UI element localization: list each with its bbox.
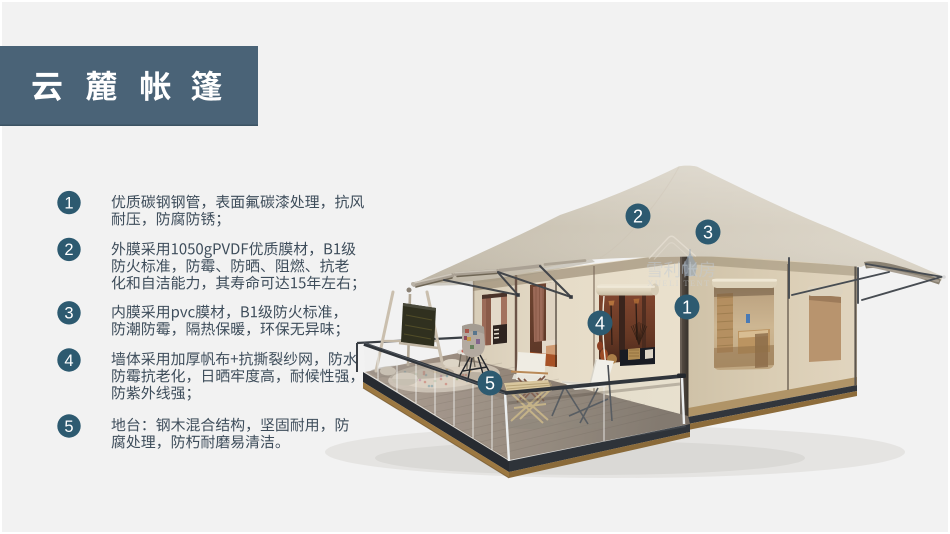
svg-text:4: 4 <box>595 313 605 333</box>
svg-text:3: 3 <box>64 305 73 323</box>
svg-text:1: 1 <box>64 194 73 212</box>
svg-text:2: 2 <box>633 206 643 226</box>
svg-text:4: 4 <box>64 352 73 370</box>
svg-text:5: 5 <box>64 418 73 436</box>
svg-text:2: 2 <box>64 241 73 259</box>
svg-text:1: 1 <box>682 297 692 317</box>
svg-text:XUELI TENT: XUELI TENT <box>647 279 710 288</box>
svg-text:5: 5 <box>485 373 495 393</box>
svg-text:3: 3 <box>703 222 713 242</box>
